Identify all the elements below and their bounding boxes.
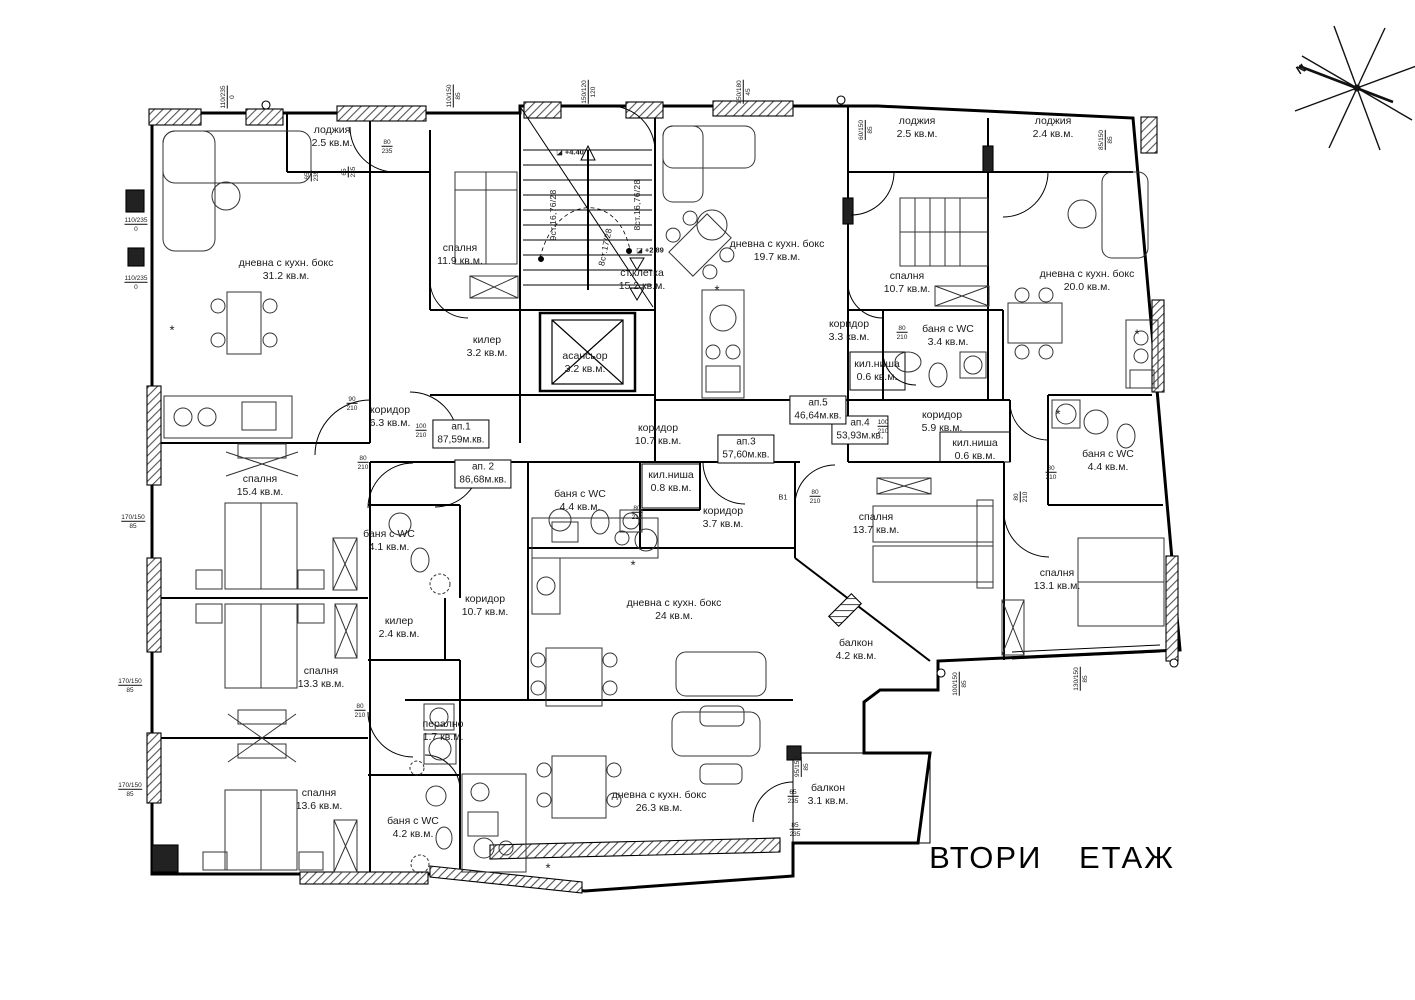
room-label: лоджия2.4 кв.м. bbox=[1033, 115, 1074, 141]
stair-label: 8ст.17/28 bbox=[596, 227, 614, 267]
stair-label: 9ст.16,76/28 bbox=[548, 190, 558, 241]
room-label: спалня11.9 кв.м. bbox=[437, 242, 483, 268]
room-label: лоджия2.5 кв.м. bbox=[897, 115, 938, 141]
room-label: дневна с кухн. бокс24 кв.м. bbox=[627, 597, 722, 623]
floor-plan-page: лоджия2.5 кв.м.дневна с кухн. бокс31.2 к… bbox=[0, 0, 1415, 1000]
apartment-label: ап.187,59м.кв. bbox=[432, 420, 489, 449]
room-label: коридор10.7 кв.м. bbox=[462, 593, 509, 619]
dimension-label: 65235 bbox=[788, 789, 799, 805]
room-label: килер3.2 кв.м. bbox=[467, 334, 508, 360]
room-label: дневна с кухн. бокс31.2 кв.м. bbox=[239, 257, 334, 283]
dimension-label: 85235 bbox=[790, 822, 801, 838]
dimension-label: 110/2350 bbox=[124, 217, 147, 233]
dimension-label: 95/15085 bbox=[794, 757, 810, 777]
dimension-label: 65235 bbox=[304, 171, 320, 182]
dimension-label: 85/15085 bbox=[1098, 130, 1114, 150]
room-label: баня с WC4.4 кв.м. bbox=[1082, 448, 1134, 474]
dimension-label: 110/2350 bbox=[124, 275, 147, 291]
room-label: коридор6.3 кв.м. bbox=[370, 404, 411, 430]
room-label: спалня13.3 кв.м. bbox=[298, 665, 345, 691]
annotation-label: * bbox=[545, 861, 550, 876]
dimension-label: 170/15085 bbox=[118, 782, 142, 798]
room-label: кил.ниша0.6 кв.м. bbox=[854, 358, 899, 384]
room-label: кил.ниша0.6 кв.м. bbox=[952, 437, 997, 463]
dimension-label: 80210 bbox=[897, 325, 908, 341]
dimension-label: 150/120120 bbox=[581, 80, 597, 104]
dimension-label: 110/2350 bbox=[220, 85, 236, 108]
dimension-label: 80210 bbox=[632, 505, 643, 521]
room-label: дневна с кухн. бокс26.3 кв.м. bbox=[612, 789, 707, 815]
room-label: коридор10.7 кв.м. bbox=[635, 422, 682, 448]
dimension-label: 170/15085 bbox=[118, 678, 142, 694]
room-label: коридор3.7 кв.м. bbox=[703, 505, 744, 531]
room-label: спалня13.7 кв.м. bbox=[853, 511, 900, 537]
annotation-label: B1 bbox=[778, 493, 787, 502]
dimension-label: 80235 bbox=[382, 139, 393, 155]
dimension-label: 100/15085 bbox=[952, 672, 968, 696]
room-label: коридор5.9 кв.м. bbox=[922, 409, 963, 435]
stair-label: 8ст.16,76/28 bbox=[632, 180, 642, 231]
dimension-label: 80210 bbox=[355, 703, 366, 719]
dimension-label: 250/18045 bbox=[736, 80, 752, 104]
dimension-label: 65235 bbox=[341, 167, 357, 178]
room-label: баня с WC4.4 кв.м. bbox=[554, 488, 606, 514]
labels-layer: лоджия2.5 кв.м.дневна с кухн. бокс31.2 к… bbox=[0, 0, 1415, 1000]
dimension-label: 90210 bbox=[347, 396, 358, 412]
annotation-label: * bbox=[630, 558, 635, 573]
annotation-label: * bbox=[169, 323, 174, 338]
floor-title: ВТОРИ ЕТАЖ bbox=[929, 840, 1175, 876]
dimension-label: 110/15085 bbox=[446, 84, 462, 107]
annotation-label: * bbox=[1055, 407, 1060, 422]
elevation-label: +4.40 bbox=[556, 148, 584, 157]
room-label: спалня13.1 кв.м. bbox=[1034, 567, 1081, 593]
dimension-label: 80210 bbox=[1046, 465, 1057, 481]
room-label: ст.клетка15.2 кв.м. bbox=[619, 267, 666, 293]
room-label: асансьор3.2 кв.м. bbox=[562, 350, 607, 376]
apartment-label: ап.453,93м.кв. bbox=[831, 416, 888, 445]
room-label: баня с WC3.4 кв.м. bbox=[922, 323, 974, 349]
apartment-label: ап.357,60м.кв. bbox=[717, 435, 774, 464]
room-label: килер2.4 кв.м. bbox=[379, 615, 420, 641]
dimension-label: 100210 bbox=[878, 419, 889, 435]
room-label: баня с WC4.1 кв.м. bbox=[363, 528, 415, 554]
dimension-label: 100210 bbox=[416, 423, 427, 439]
room-label: лоджия2.5 кв.м. bbox=[312, 124, 353, 150]
room-label: баня с WC4.2 кв.м. bbox=[387, 815, 439, 841]
room-label: спалня13.6 кв.м. bbox=[296, 787, 343, 813]
apartment-label: ап.546,64м.кв. bbox=[789, 396, 846, 425]
room-label: дневна с кухн. бокс20.0 кв.м. bbox=[1040, 268, 1135, 294]
dimension-label: 60/15085 bbox=[858, 120, 874, 140]
dimension-label: 80210 bbox=[358, 455, 369, 471]
room-label: балкон3.1 кв.м. bbox=[808, 782, 849, 808]
dimension-label: 130/15085 bbox=[1073, 667, 1089, 691]
dimension-label: 80210 bbox=[1013, 492, 1029, 503]
room-label: спалня10.7 кв.м. bbox=[884, 270, 931, 296]
annotation-label: * bbox=[1134, 327, 1139, 342]
dimension-label: 80210 bbox=[810, 489, 821, 505]
room-label: спалня15.4 кв.м. bbox=[237, 473, 284, 499]
annotation-label: * bbox=[714, 283, 719, 298]
room-label: дневна с кухн. бокс19.7 кв.м. bbox=[730, 238, 825, 264]
apartment-label: ап. 286,68м.кв. bbox=[454, 460, 511, 489]
room-label: перално1.7 кв.м. bbox=[423, 718, 464, 744]
room-label: кил.ниша0.8 кв.м. bbox=[648, 469, 693, 495]
room-label: балкон4.2 кв.м. bbox=[836, 637, 877, 663]
elevation-label: +2.89 bbox=[636, 246, 664, 255]
dimension-label: 170/15085 bbox=[121, 514, 145, 530]
room-label: коридор3.3 кв.м. bbox=[829, 318, 870, 344]
